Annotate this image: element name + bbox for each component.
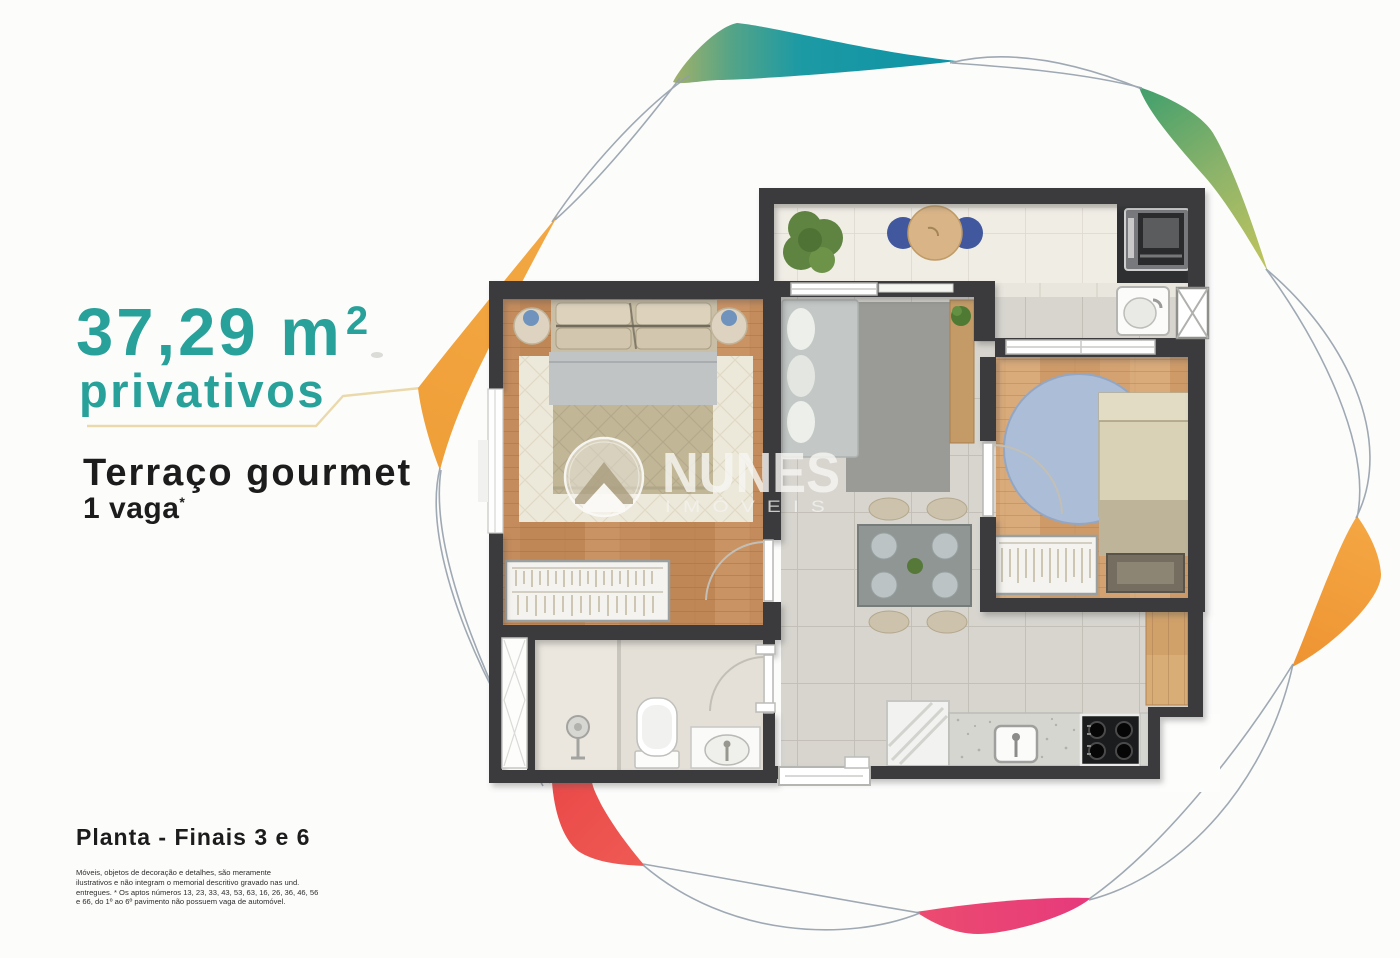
- svg-text:IMÓVEIS: IMÓVEIS: [665, 497, 837, 516]
- svg-text:NUNES: NUNES: [662, 441, 840, 505]
